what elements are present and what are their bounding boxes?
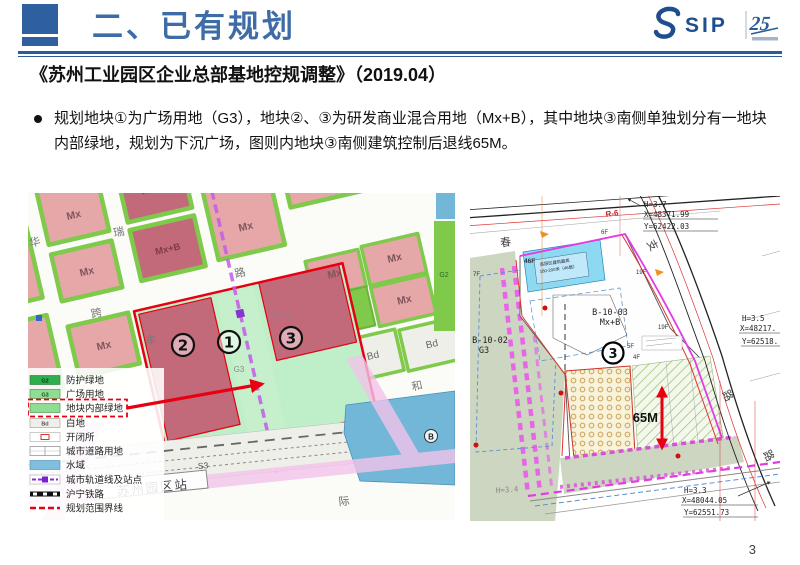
coord-h: H=3.5 [742, 314, 765, 323]
floor-label-19f: 19F [636, 270, 647, 276]
legend-label: 城市道路用地 [66, 446, 124, 458]
street-label-ji: 际 [338, 495, 350, 509]
plot-label-g2: G2 [439, 272, 448, 279]
street-label-chun: 春 [499, 235, 512, 250]
parcel-b1002-code: B-10-02 [472, 336, 508, 346]
legend-label: 开闭所 [66, 432, 95, 444]
plot3-number: 3 [608, 347, 617, 362]
coord-h: H=3.3 [684, 486, 707, 495]
document-title: 《苏州工业园区企业总部基地控规调整》（2019.04） [30, 61, 446, 87]
header-rule-thin [18, 56, 782, 57]
left-map-legend: G2 防护绿地 G3 广场用地 地块内部绿地 Bd 白地 开闭所 城市道路用地 [28, 368, 164, 520]
parcel-b1002-use: G3 [479, 346, 489, 356]
floor-label-46f: 46F [524, 258, 535, 265]
header-rule-thick [18, 51, 782, 54]
plot1-use-label: G3 [234, 365, 245, 374]
legend-label: 沪宁铁路 [66, 489, 105, 501]
setback-value: 65M [633, 410, 658, 425]
sip-logo-graphic: SIP 25 [648, 5, 784, 47]
coord-y: Y=62518. [742, 337, 778, 346]
sip-swirl-icon [656, 9, 678, 37]
floor-label-4f: 4F [633, 355, 640, 361]
coord-y: Y=62422.03 [644, 222, 689, 231]
coord-h: H=3.7 [644, 200, 667, 209]
page-title: 二、已有规划 [92, 1, 296, 46]
small-note-box [642, 336, 682, 350]
right-map-cad-plan: 高层区建筑最高 180-200米（46层） [470, 196, 780, 521]
slide: 二、已有规划 SIP 25 《苏州工业园区企业总部基地控规调整》（2019.04… [0, 0, 800, 565]
left-map-zoning-plan: Mx Mx Mx Mx+B Mx+B Mx Mx Mx Mx Mx Bd Bd … [28, 193, 455, 520]
sip-logo-text: SIP [685, 14, 728, 37]
bullet-marker [34, 115, 42, 123]
page-number: 3 [749, 542, 756, 557]
legend-code: G3 [41, 393, 48, 399]
bullet-text: 规划地块①为广场用地（G3），地块②、③为研发商业混合用地（Mx+B），其中地块… [54, 106, 772, 156]
water-corner [436, 193, 455, 219]
coordinate-callout-4: H=3.4 [496, 484, 520, 495]
coord-x: X=48044.05 [682, 496, 727, 505]
legend-label: 规划范围界线 [66, 503, 124, 515]
plot1-number: 1 [224, 334, 234, 352]
legend-label: 水域 [66, 460, 86, 472]
plot3-use-label: Mx+B [272, 310, 293, 319]
coord-x: X=48371.99 [644, 210, 689, 219]
parcel-b1003-use: Mx+B [600, 318, 620, 328]
station-code: S3 [197, 460, 209, 471]
floor-label-5f: 5F [627, 344, 634, 350]
floor-label-19f: 19F [658, 325, 669, 331]
plot2-number: 2 [178, 337, 188, 355]
legend-label: 地块内部绿地 [66, 403, 124, 415]
legend-label: 防护绿地 [66, 375, 105, 387]
sip-logo: SIP 25 [648, 5, 784, 52]
legend-code: Bd [41, 422, 48, 428]
b-marker-label: B [428, 433, 434, 442]
legend-label: 白地 [66, 418, 86, 430]
plot3-number: 3 [286, 330, 296, 348]
legend-code: G2 [41, 379, 48, 385]
floor-label-6f: 6F [601, 230, 608, 236]
coord-y: Y=62551.73 [684, 508, 729, 517]
title-accent-bar [22, 37, 58, 46]
parcel-b1003-code: B-10-03 [592, 308, 628, 318]
bullet-item: 规划地块①为广场用地（G3），地块②、③为研发商业混合用地（Mx+B），其中地块… [30, 106, 772, 156]
anniversary-caption-bar [752, 37, 778, 41]
legend-label: 城市轨道线及站点 [66, 474, 143, 486]
coord-x: X=48217. [740, 324, 776, 333]
road-code-r6: R-6 [605, 208, 620, 219]
floor-label-7f: 7F [473, 272, 480, 278]
substation-marker [36, 315, 42, 321]
title-accent-square [22, 4, 58, 34]
